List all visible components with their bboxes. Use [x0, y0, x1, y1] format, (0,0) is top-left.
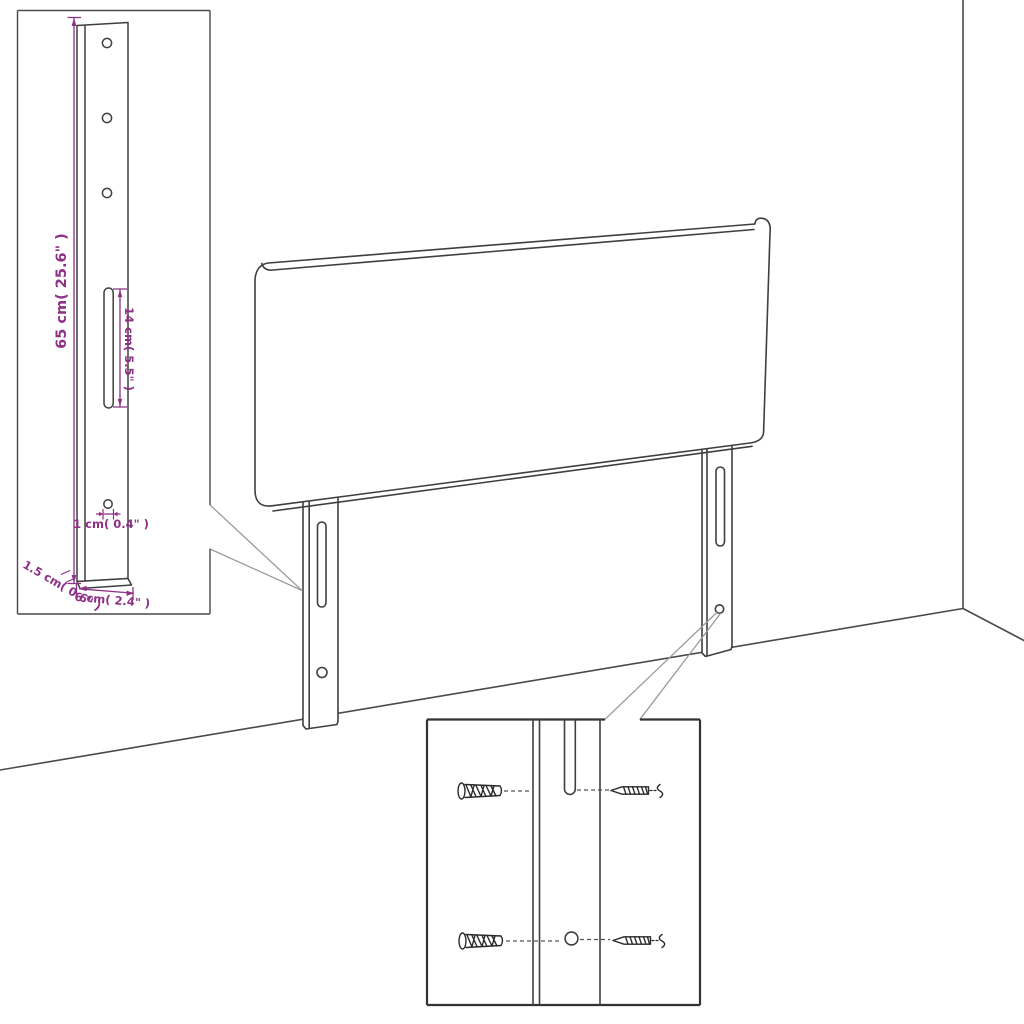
wall-plug-icon	[459, 933, 503, 949]
washer-squiggle	[657, 785, 662, 798]
wall-plug-icon	[458, 783, 502, 799]
headboard-panel	[255, 218, 770, 511]
slot-dimension-label: 14 cm( 5.5" )	[122, 307, 136, 391]
floor-right-line	[963, 609, 1024, 641]
bracket-hole-middle	[102, 113, 111, 122]
screw-icon	[611, 785, 663, 798]
screw-icon	[613, 935, 665, 948]
mounting-detail-inset	[427, 720, 700, 1006]
height-dimension-label: 65 cm( 25.6" )	[54, 233, 70, 349]
headboard-left-leg	[303, 470, 338, 729]
floor-left-line	[0, 609, 963, 771]
washer-squiggle	[659, 935, 664, 948]
diagram-canvas: 65 cm( 25.6" ) 14 cm( 5.5" ) 1 cm( 0.4" …	[0, 0, 1024, 1024]
bracket-hole-top	[102, 38, 111, 47]
leg-strip-slot	[565, 720, 576, 795]
leg-detail-bracket	[77, 23, 132, 589]
bracket-small-hole	[104, 500, 112, 508]
bracket-hole-bottom	[102, 188, 111, 197]
detail-callout-lines	[210, 505, 302, 591]
bracket-slot	[104, 288, 113, 408]
mounting-inset-border	[427, 720, 700, 1006]
headboard-panel-face	[255, 218, 770, 506]
hole-dimension-label: 1 cm( 0.4" )	[73, 517, 149, 531]
leg-strip-hole	[565, 932, 578, 945]
mounting-dashed-guides	[504, 790, 610, 941]
height-dim-arrow-top	[72, 18, 77, 26]
left-leg-screw-hole	[317, 668, 327, 678]
leg-detail-inset: 65 cm( 25.6" ) 14 cm( 5.5" ) 1 cm( 0.4" …	[18, 11, 211, 615]
left-leg-slot	[318, 522, 327, 607]
leg-strip	[533, 720, 600, 1006]
right-leg-slot	[716, 467, 725, 546]
headboard-assembly-diagram: 65 cm( 25.6" ) 14 cm( 5.5" ) 1 cm( 0.4" …	[0, 0, 1024, 1024]
